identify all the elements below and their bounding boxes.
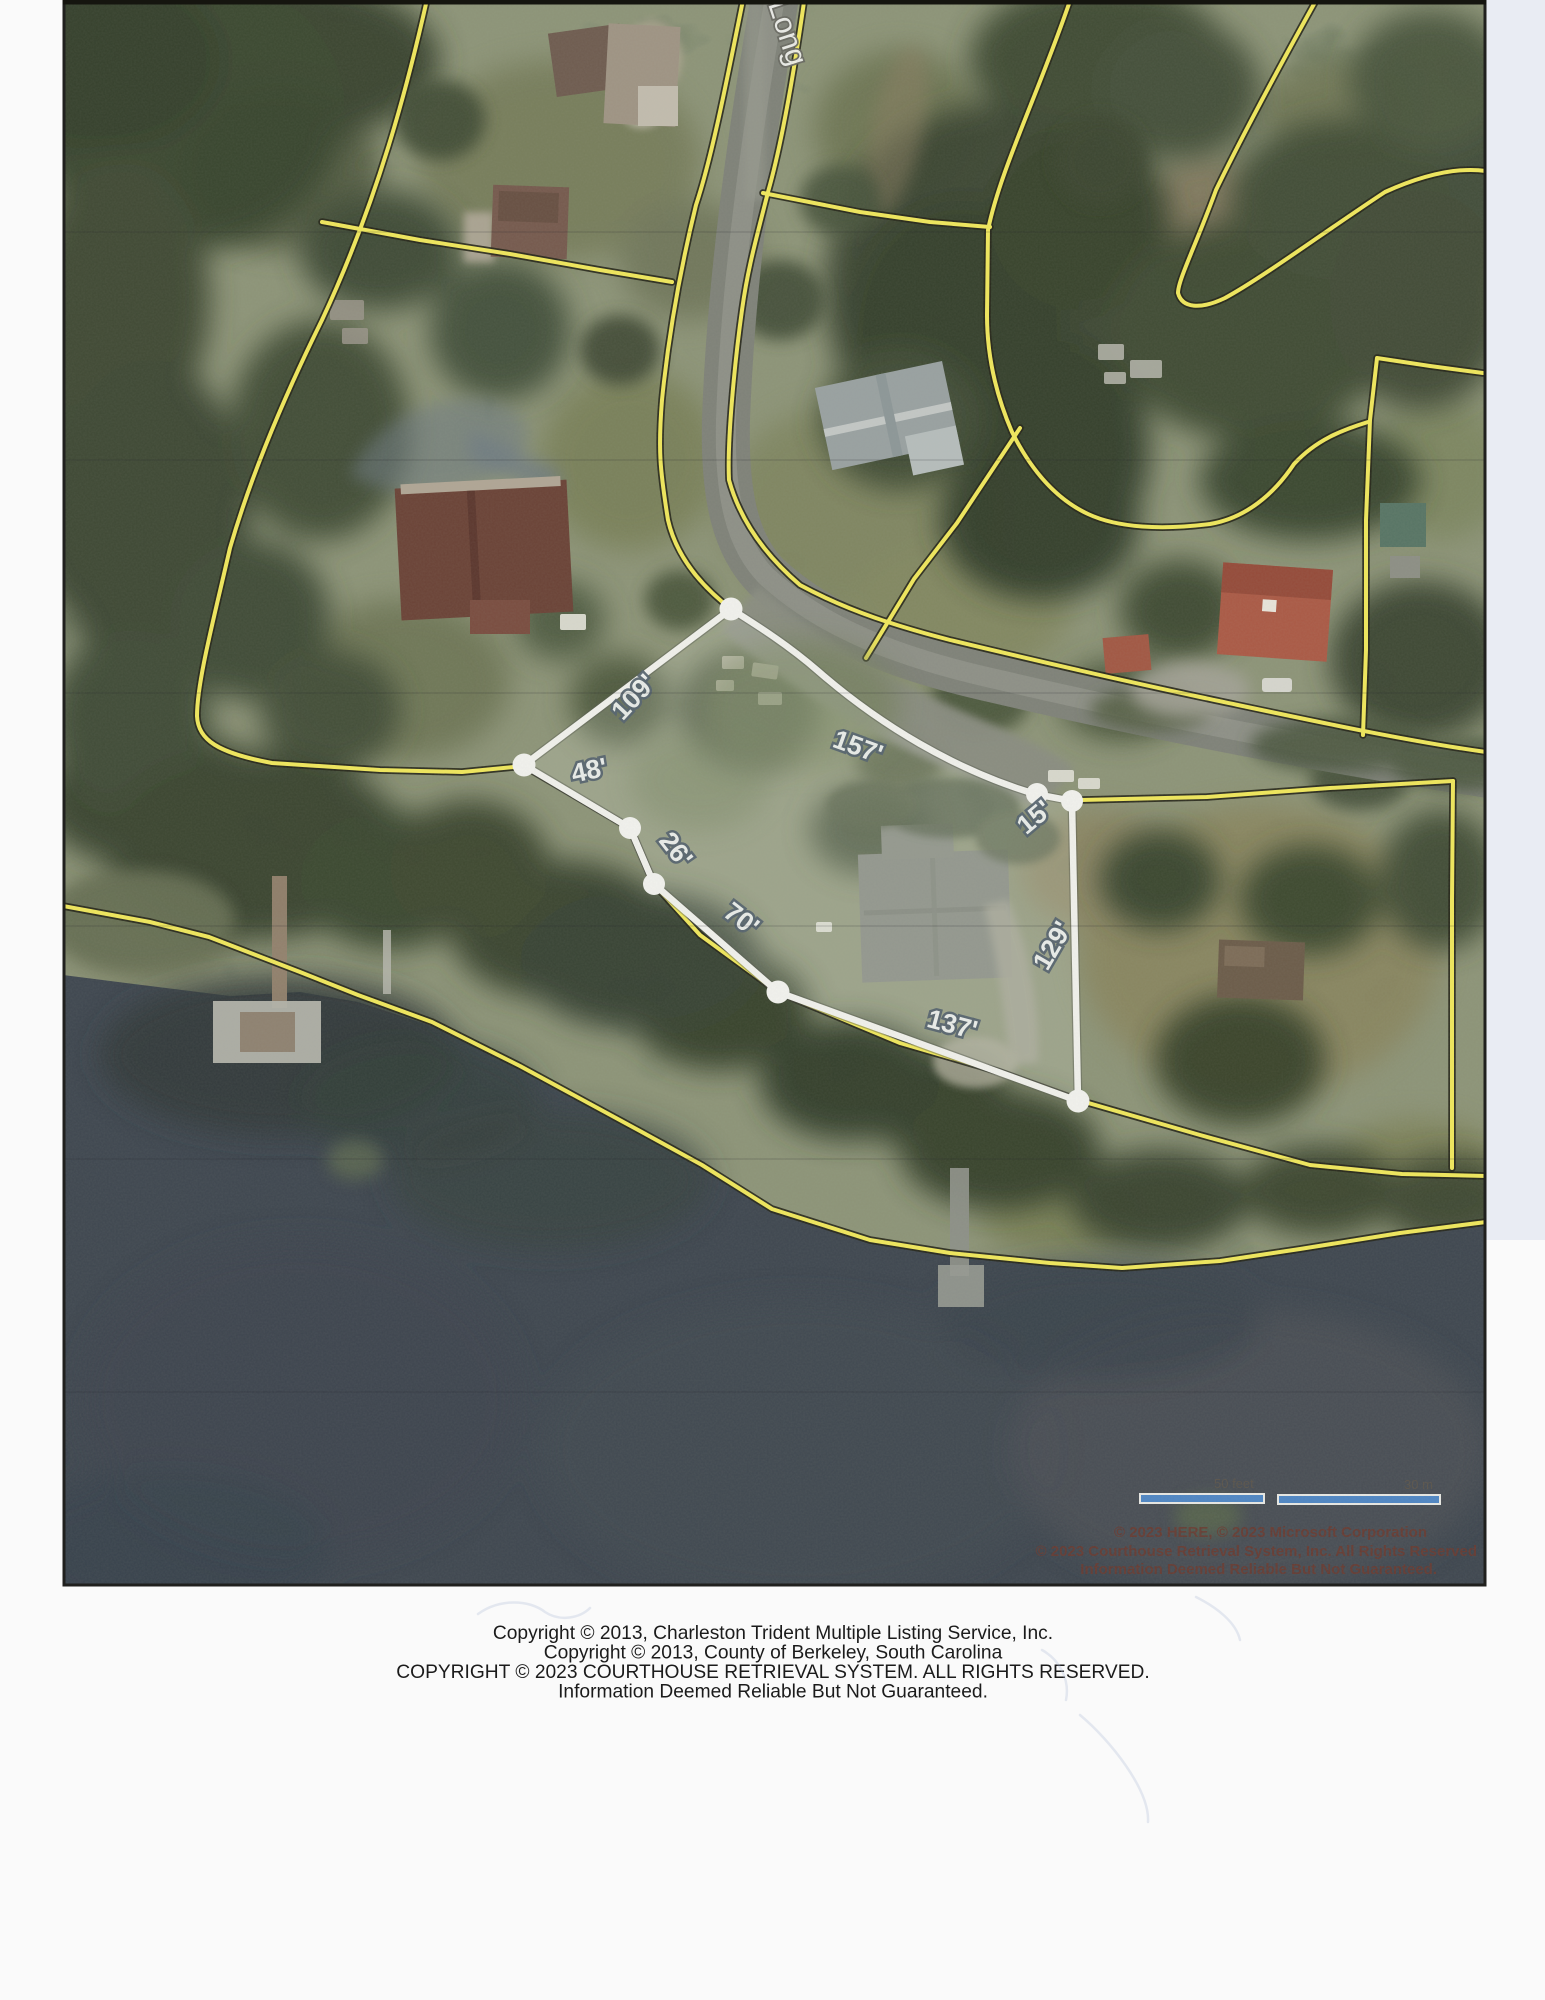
svg-text:Copyright © 2013, Charleston T: Copyright © 2013, Charleston Trident Mul… (493, 1623, 1053, 1644)
svg-text:Copyright © 2013, County of Be: Copyright © 2013, County of Berkeley, So… (544, 1643, 1003, 1664)
svg-text:COPYRIGHT © 2023 COURTHOUSE RE: COPYRIGHT © 2023 COURTHOUSE RETRIEVAL SY… (396, 1662, 1149, 1683)
svg-text:Information Deemed Reliable Bu: Information Deemed Reliable But Not Guar… (558, 1682, 988, 1703)
